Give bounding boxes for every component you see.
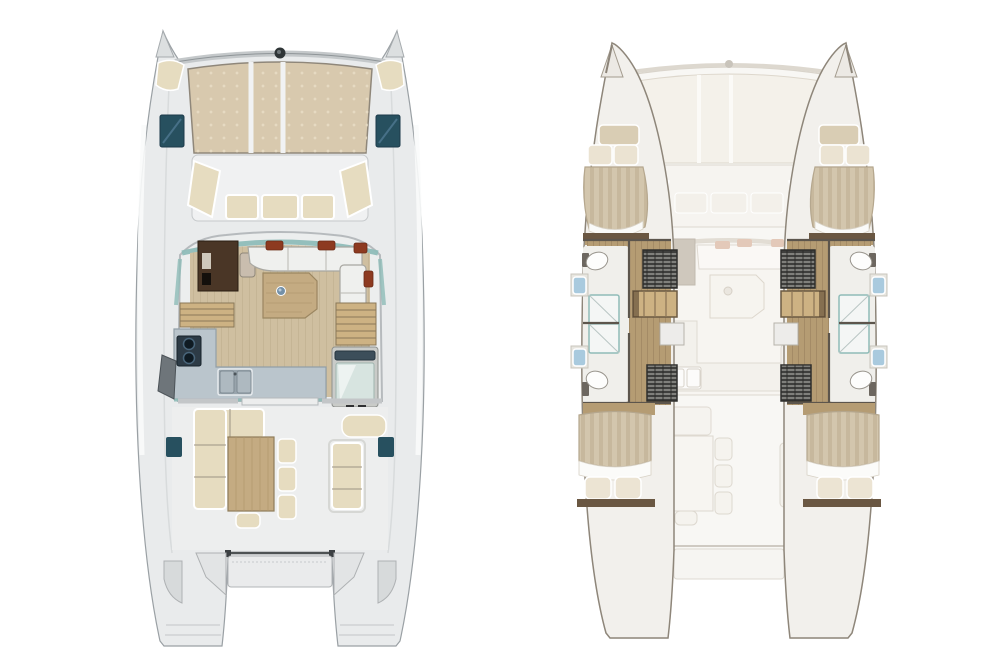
bow-tip-starboard [386, 31, 404, 57]
sofa-pillow [364, 271, 373, 287]
hull-plan [571, 43, 887, 638]
basin [573, 349, 586, 366]
fridge-lid [335, 351, 375, 360]
burner [184, 353, 195, 364]
bed-pillow [585, 477, 611, 499]
bed-pillow [615, 477, 641, 499]
coffee-table [263, 273, 317, 318]
wardrobe [647, 365, 677, 401]
stool [278, 495, 296, 519]
faucet [234, 373, 237, 376]
sofa-pillow [354, 243, 367, 253]
hull-midship [571, 240, 684, 405]
ghost-stool [715, 438, 732, 460]
burner [184, 339, 195, 350]
floor-plan-figure [0, 0, 1000, 667]
nav-instrument [202, 253, 211, 269]
bow-cabin [583, 125, 649, 245]
ghost-pillow [715, 241, 730, 249]
stern-platform [228, 556, 332, 587]
cockpit-sofa-side [194, 409, 226, 509]
forestay-fitting-hub [277, 50, 281, 54]
stool [236, 513, 260, 528]
stool [278, 467, 296, 491]
ghost-table-inlay [724, 287, 732, 295]
aft-cockpit [166, 407, 394, 550]
bow-tip-port [156, 31, 174, 57]
ghost-coffee-table [710, 275, 764, 318]
steps-shadow [633, 291, 639, 317]
trampoline-dots [188, 62, 372, 153]
washbasin [571, 274, 588, 296]
deck-hatch-port [160, 115, 184, 147]
table-inlay-dot [279, 289, 282, 292]
washbasin [571, 346, 588, 368]
bed-duvet [579, 412, 651, 468]
bed-foot-board [577, 499, 655, 507]
ghost-bench-cushion [711, 193, 747, 213]
bow-shelf-seat [599, 125, 639, 145]
coffee-table-top [263, 273, 317, 318]
stool [278, 439, 296, 463]
ghost-bench-cushion [751, 193, 783, 213]
deck-plan-svg [130, 5, 430, 660]
ghost-pillow [737, 239, 752, 247]
forward-bench-cushion [302, 195, 334, 219]
cockpit-hatch-starboard [378, 437, 394, 457]
ghost-bench-cushion [675, 193, 707, 213]
dining-table [228, 437, 274, 511]
companionway-steps-port [180, 303, 234, 327]
hull-plan-svg [563, 33, 903, 648]
sliding-door [242, 398, 318, 405]
forward-bench-cushion [262, 195, 298, 219]
hull-steps [633, 291, 677, 317]
sofa-pillow [266, 241, 283, 250]
ghost-pillow [771, 239, 784, 247]
ghost-forestay-fitting [725, 60, 733, 68]
bow-trampoline [188, 62, 372, 153]
sink-basin [237, 371, 251, 393]
sink-basin [220, 371, 234, 393]
sofa-pillow [318, 241, 335, 250]
basin [573, 277, 586, 294]
helm-seat [342, 415, 386, 437]
bed-pillow [588, 145, 612, 165]
ghost-stool [715, 465, 732, 487]
forward-cockpit [188, 155, 372, 221]
mid-cabinet [660, 323, 684, 345]
forward-bench-cushion [226, 195, 258, 219]
deck-plan [136, 31, 424, 646]
bed-pillow [614, 145, 638, 165]
aft-bench [332, 443, 362, 509]
ghost-stern-platform [674, 549, 784, 579]
ghost-stool [715, 492, 732, 514]
saloon [158, 232, 384, 411]
cockpit-hatch-port [166, 437, 182, 457]
nav-screen [202, 273, 211, 285]
ghost-stool [675, 511, 697, 525]
wardrobe [643, 250, 677, 288]
deck-hatch-starboard [376, 115, 400, 147]
companionway-steps-starboard [336, 303, 376, 345]
